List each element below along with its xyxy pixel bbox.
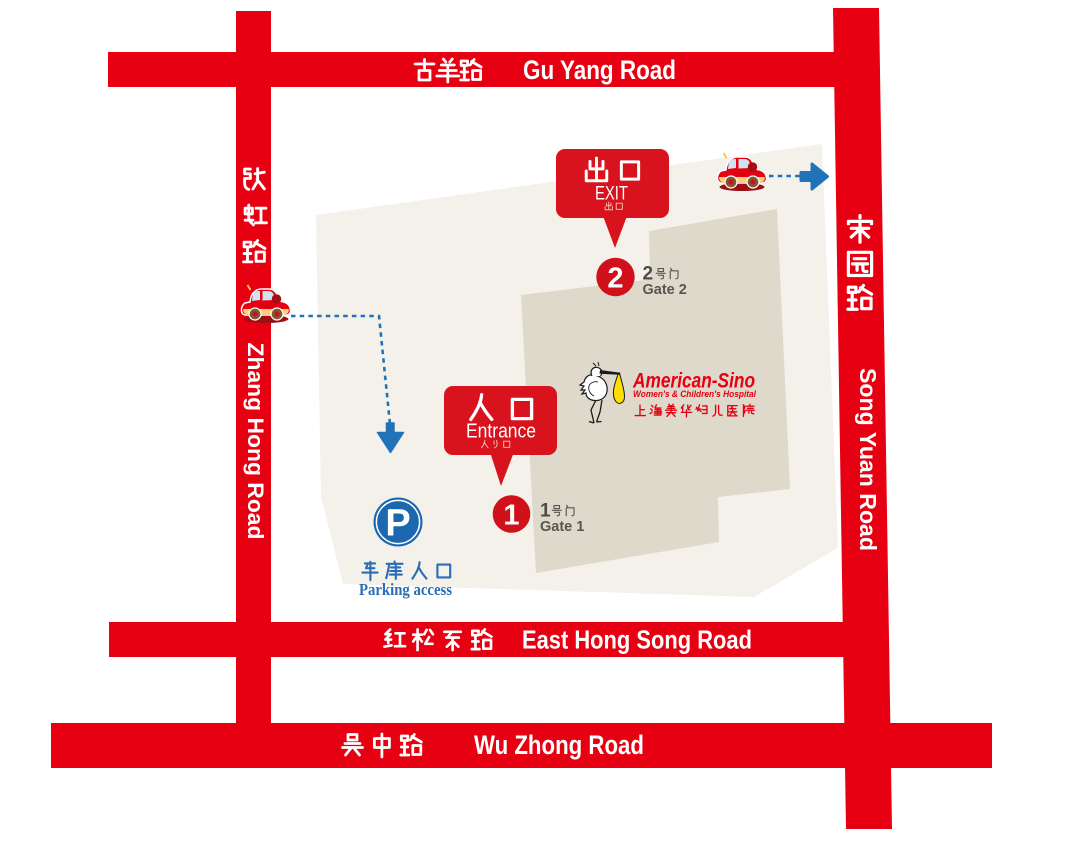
svg-text:EXIT: EXIT [595,184,628,205]
svg-text:Gu Yang Road: Gu Yang Road [523,55,676,85]
svg-text:Zhang Hong Road: Zhang Hong Road [243,343,268,540]
svg-text:Gate 1: Gate 1 [540,519,584,535]
svg-text:2: 2 [607,263,623,295]
svg-text:Wu Zhong Road: Wu Zhong Road [474,730,644,760]
svg-text:P: P [385,503,410,545]
svg-text:Entrance: Entrance [466,421,536,443]
svg-text:Song Yuan Road: Song Yuan Road [855,368,881,551]
svg-text:East Hong Song Road: East Hong Song Road [522,625,752,655]
svg-text:Gate 2: Gate 2 [643,282,687,298]
svg-text:Women's & Children's Hospital: Women's & Children's Hospital [633,389,756,400]
svg-text:Parking access: Parking access [359,580,453,599]
svg-text:1: 1 [503,500,519,532]
